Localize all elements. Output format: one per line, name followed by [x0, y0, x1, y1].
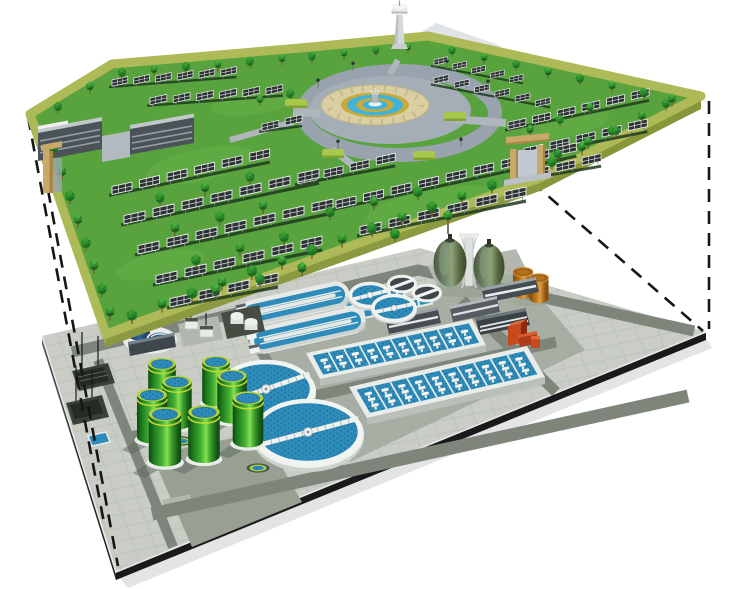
cutaway-illustration: Cutaway illustration: solar park built a… — [0, 0, 740, 589]
building-plaza — [102, 131, 130, 162]
egg-nozzle — [487, 239, 491, 244]
hedge-shade — [413, 158, 435, 161]
egg-highlight — [480, 249, 489, 279]
path-west — [293, 112, 320, 113]
hedge-shade — [322, 156, 344, 159]
egg-digester-2 — [474, 244, 505, 290]
tower-cap-band — [392, 12, 408, 14]
intermediate-clarifier-2 — [371, 296, 417, 325]
gate-opening — [518, 150, 537, 177]
hedge-shade — [444, 119, 466, 122]
egg-digester-1 — [434, 239, 467, 287]
entrance-gate-right — [504, 133, 551, 186]
egg-cap — [485, 244, 494, 248]
covered-tank-2 — [414, 285, 441, 301]
pipe-platform — [459, 233, 479, 238]
egg-highlight — [439, 244, 449, 276]
covered-tank-1 — [389, 276, 416, 292]
egg-nozzle — [448, 234, 452, 239]
hedge-shade — [285, 106, 307, 109]
ground-pool-2 — [247, 463, 270, 472]
tower-base — [391, 44, 408, 49]
illustration-stage: Cutaway illustration: solar park built a… — [0, 0, 740, 589]
secondary-clarifier — [252, 400, 364, 472]
